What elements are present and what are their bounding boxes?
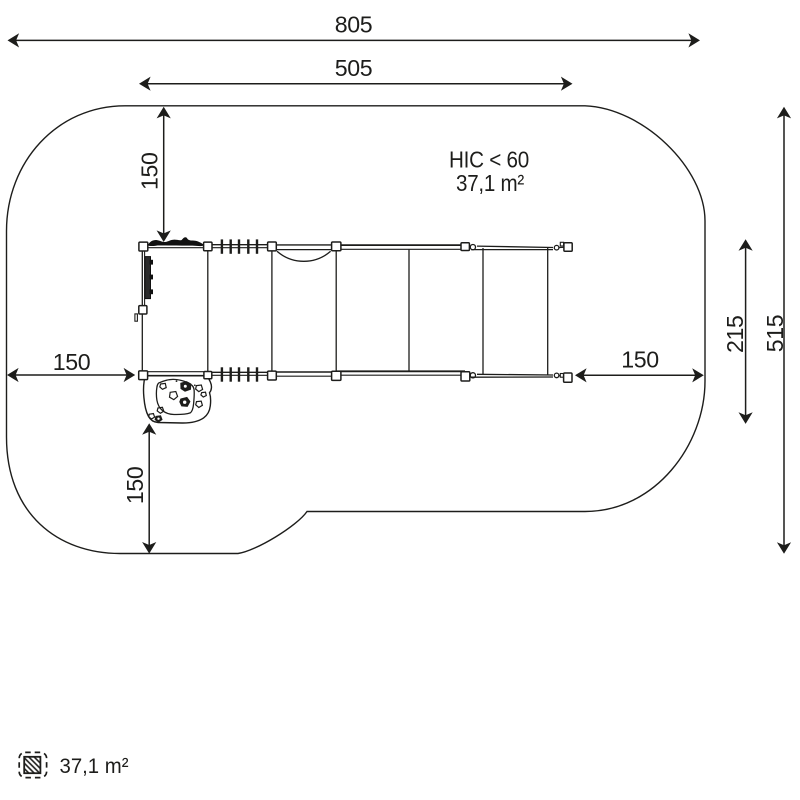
svg-text:37,1 m²: 37,1 m² [456,170,524,196]
svg-text:150: 150 [137,152,163,190]
svg-text:HIC < 60: HIC < 60 [449,147,529,173]
svg-text:515: 515 [762,314,788,352]
svg-text:37,1 m²: 37,1 m² [60,754,129,778]
svg-text:150: 150 [53,349,91,375]
svg-text:150: 150 [122,466,148,504]
svg-text:805: 805 [335,12,373,38]
svg-text:505: 505 [335,55,373,81]
svg-text:150: 150 [621,346,659,372]
svg-text:215: 215 [722,315,748,353]
